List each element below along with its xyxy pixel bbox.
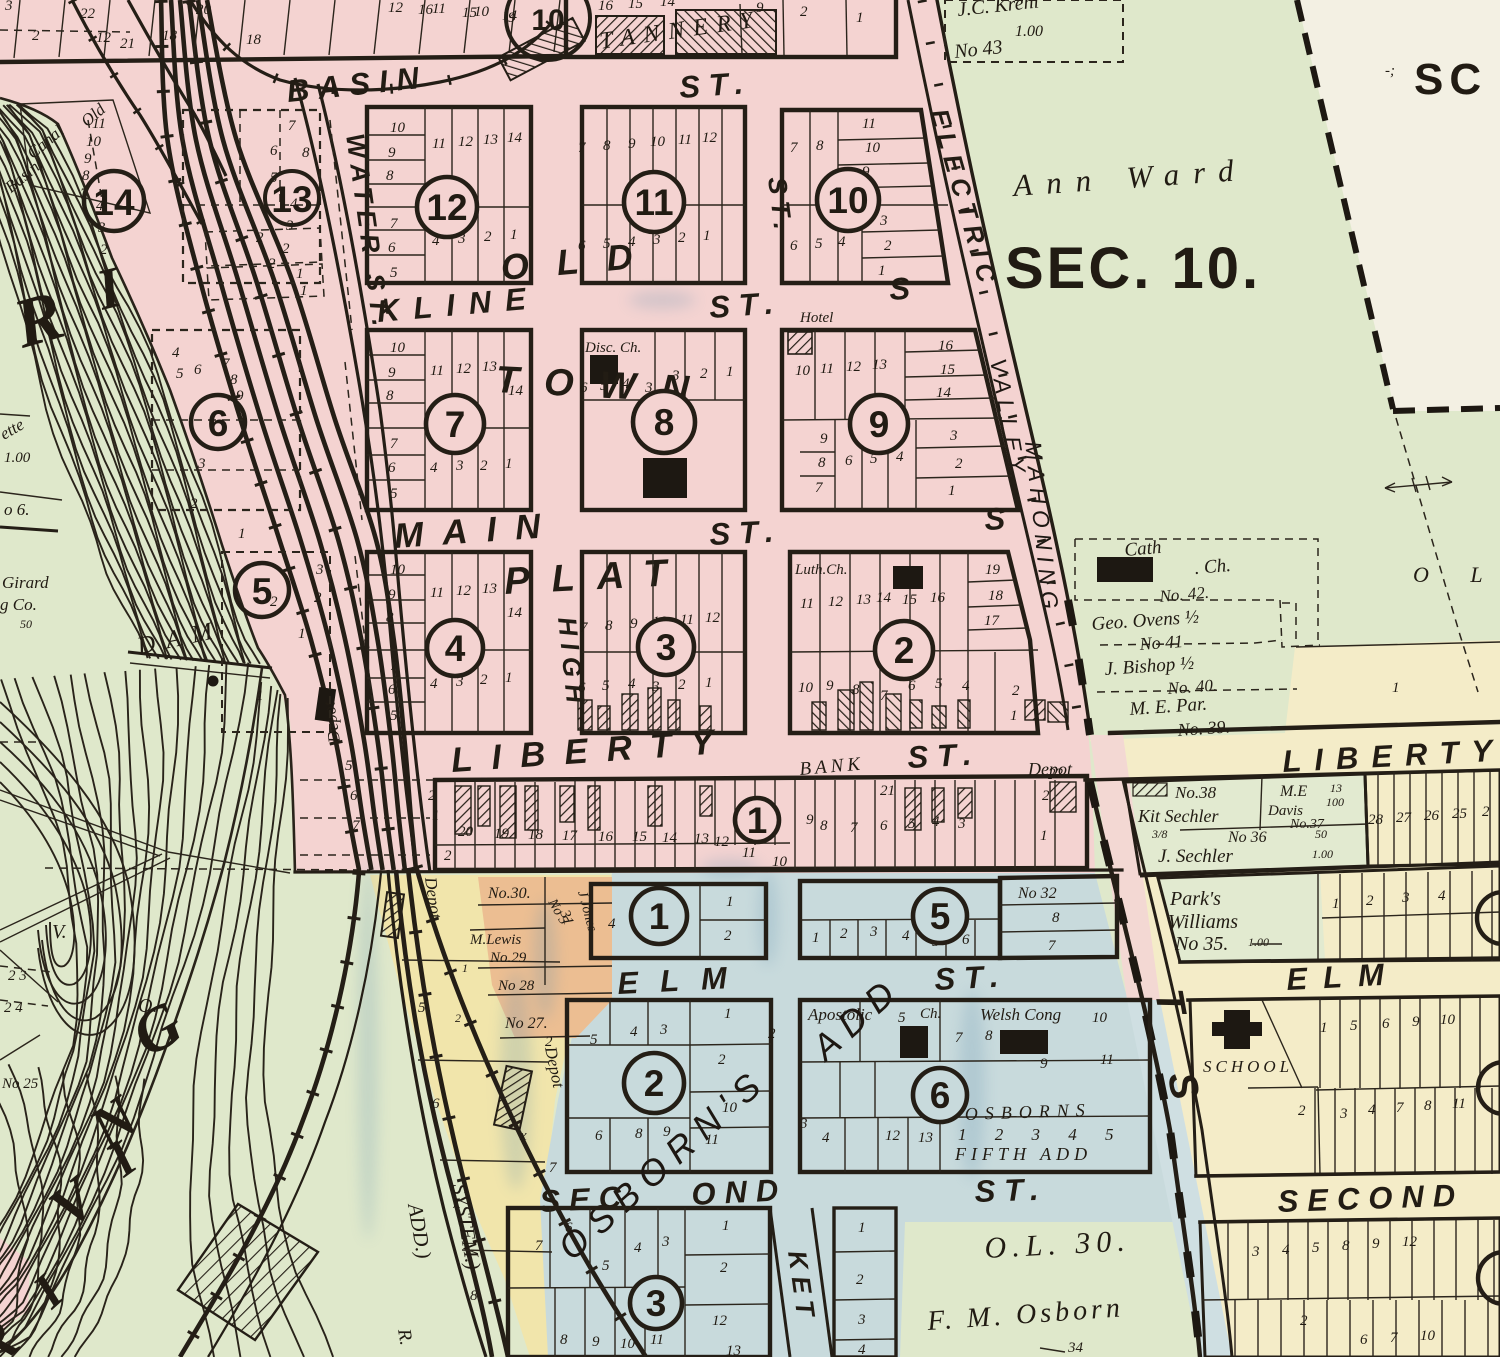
svg-text:6: 6 bbox=[208, 403, 229, 444]
svg-text:ST.: ST. bbox=[907, 736, 982, 775]
svg-text:Disc. Ch.: Disc. Ch. bbox=[584, 340, 641, 356]
svg-text:No 36: No 36 bbox=[1227, 829, 1267, 846]
svg-text:8: 8 bbox=[1052, 910, 1060, 926]
svg-text:O.: O. bbox=[138, 995, 157, 1017]
svg-text:9: 9 bbox=[592, 1334, 600, 1350]
svg-text:18: 18 bbox=[988, 588, 1004, 604]
svg-text:6: 6 bbox=[578, 680, 586, 696]
svg-text:3: 3 bbox=[857, 1312, 866, 1328]
svg-text:3: 3 bbox=[197, 456, 206, 472]
svg-text:11: 11 bbox=[432, 1, 446, 17]
svg-text:2: 2 bbox=[678, 230, 686, 246]
svg-text:4: 4 bbox=[902, 928, 910, 944]
svg-text:SEC. 10.: SEC. 10. bbox=[1005, 236, 1261, 301]
svg-text:15: 15 bbox=[902, 592, 918, 608]
svg-text:1: 1 bbox=[1392, 680, 1400, 696]
svg-text:1: 1 bbox=[726, 364, 734, 380]
svg-text:No 35.: No 35. bbox=[1174, 933, 1228, 955]
svg-text:6: 6 bbox=[790, 238, 798, 254]
svg-text:1: 1 bbox=[858, 1220, 866, 1236]
svg-text:6: 6 bbox=[432, 1096, 440, 1112]
svg-text:1: 1 bbox=[462, 961, 468, 975]
svg-text:1: 1 bbox=[724, 1006, 732, 1022]
svg-text:11: 11 bbox=[430, 363, 444, 379]
svg-text:No 28: No 28 bbox=[497, 978, 535, 994]
svg-text:Ch.: Ch. bbox=[920, 1006, 941, 1022]
svg-text:4: 4 bbox=[858, 1342, 866, 1357]
svg-text:Cath: Cath bbox=[1124, 537, 1163, 561]
svg-text:1.00: 1.00 bbox=[1248, 935, 1269, 949]
svg-text:3: 3 bbox=[659, 1022, 668, 1038]
svg-text:9: 9 bbox=[826, 678, 834, 694]
svg-text:13: 13 bbox=[482, 581, 497, 597]
svg-text:3: 3 bbox=[1251, 1244, 1260, 1260]
svg-text:3: 3 bbox=[1401, 890, 1410, 906]
svg-text:10: 10 bbox=[390, 340, 406, 356]
svg-text:17: 17 bbox=[562, 828, 579, 844]
svg-text:5: 5 bbox=[1312, 1240, 1320, 1256]
svg-text:10: 10 bbox=[795, 363, 811, 379]
svg-text:1: 1 bbox=[505, 670, 513, 686]
svg-text:13: 13 bbox=[872, 357, 887, 373]
svg-text:13: 13 bbox=[726, 1343, 741, 1357]
svg-text:FIFTH ADD: FIFTH ADD bbox=[954, 1144, 1092, 1164]
svg-text:-;: -; bbox=[1385, 63, 1395, 79]
svg-text:12: 12 bbox=[702, 130, 718, 146]
svg-text:19: 19 bbox=[985, 562, 1001, 578]
svg-text:8: 8 bbox=[230, 372, 238, 388]
svg-text:11: 11 bbox=[742, 845, 756, 861]
svg-text:1: 1 bbox=[812, 930, 820, 946]
svg-text:21: 21 bbox=[120, 36, 135, 52]
svg-text:SEC: SEC bbox=[539, 1179, 631, 1219]
svg-text:10: 10 bbox=[650, 134, 666, 150]
svg-text:12: 12 bbox=[96, 30, 112, 46]
svg-text:4: 4 bbox=[1438, 888, 1446, 904]
svg-text:5: 5 bbox=[1350, 1018, 1358, 1034]
svg-text:9: 9 bbox=[84, 151, 92, 167]
svg-text:6: 6 bbox=[388, 240, 396, 256]
svg-text:14: 14 bbox=[93, 182, 135, 223]
svg-text:7: 7 bbox=[445, 404, 466, 445]
svg-text:25: 25 bbox=[1452, 806, 1468, 822]
svg-text:14: 14 bbox=[507, 605, 523, 621]
svg-text:6: 6 bbox=[350, 788, 358, 804]
svg-text:8: 8 bbox=[1342, 1238, 1350, 1254]
svg-text:6: 6 bbox=[270, 143, 278, 159]
svg-text:4: 4 bbox=[630, 1024, 638, 1040]
svg-text:1: 1 bbox=[878, 263, 886, 279]
svg-text:11: 11 bbox=[800, 596, 814, 612]
svg-text:11: 11 bbox=[1452, 1096, 1466, 1112]
svg-text:ELM: ELM bbox=[1286, 956, 1401, 997]
svg-text:9: 9 bbox=[869, 404, 890, 445]
svg-text:2: 2 bbox=[720, 1260, 728, 1276]
svg-text:13: 13 bbox=[694, 831, 709, 847]
svg-text:Girard: Girard bbox=[2, 573, 49, 592]
svg-text:1: 1 bbox=[948, 483, 956, 499]
svg-text:2: 2 bbox=[644, 1063, 665, 1104]
svg-text:11: 11 bbox=[862, 116, 876, 132]
svg-text:9: 9 bbox=[630, 616, 638, 632]
svg-text:3: 3 bbox=[879, 213, 888, 229]
svg-text:1 2 3 4 5: 1 2 3 4 5 bbox=[958, 1125, 1126, 1144]
svg-text:1: 1 bbox=[505, 456, 513, 472]
svg-text:15: 15 bbox=[940, 362, 956, 378]
svg-text:SECOND: SECOND bbox=[1277, 1178, 1465, 1219]
svg-text:9: 9 bbox=[1040, 1056, 1048, 1072]
svg-text:8: 8 bbox=[654, 402, 675, 443]
svg-text:21: 21 bbox=[880, 783, 895, 799]
svg-text:9: 9 bbox=[806, 812, 814, 828]
svg-text:16: 16 bbox=[598, 829, 614, 845]
svg-text:16: 16 bbox=[598, 0, 614, 14]
svg-text:1.00: 1.00 bbox=[1312, 847, 1333, 861]
svg-text:10: 10 bbox=[531, 4, 564, 37]
svg-text:2: 2 bbox=[1012, 683, 1020, 699]
svg-text:4: 4 bbox=[608, 916, 616, 932]
svg-text:2: 2 bbox=[1042, 788, 1050, 804]
svg-text:No 41: No 41 bbox=[1138, 631, 1184, 654]
svg-text:4: 4 bbox=[896, 449, 904, 465]
svg-text:26: 26 bbox=[1424, 808, 1440, 824]
svg-text:5: 5 bbox=[930, 896, 951, 937]
svg-text:5: 5 bbox=[176, 366, 184, 382]
svg-text:2: 2 bbox=[724, 928, 732, 944]
svg-text:6: 6 bbox=[194, 362, 202, 378]
svg-text:10: 10 bbox=[390, 120, 406, 136]
svg-text:No 27.: No 27. bbox=[504, 1015, 548, 1032]
svg-text:Hotel: Hotel bbox=[799, 310, 833, 326]
svg-text:3: 3 bbox=[661, 1234, 670, 1250]
svg-text:1: 1 bbox=[1332, 896, 1340, 912]
svg-text:13: 13 bbox=[271, 179, 312, 220]
svg-text:11: 11 bbox=[634, 182, 673, 223]
svg-text:4: 4 bbox=[1368, 1102, 1376, 1118]
svg-text:4: 4 bbox=[822, 1130, 830, 1146]
svg-text:12: 12 bbox=[885, 1128, 901, 1144]
svg-text:4: 4 bbox=[962, 678, 970, 694]
svg-text:ELM: ELM bbox=[617, 959, 750, 1001]
svg-text:10: 10 bbox=[474, 4, 490, 20]
svg-text:9: 9 bbox=[388, 145, 396, 161]
svg-text:12: 12 bbox=[828, 594, 844, 610]
svg-text:5: 5 bbox=[898, 1010, 906, 1026]
svg-text:5: 5 bbox=[345, 758, 353, 774]
svg-text:2: 2 bbox=[894, 630, 915, 671]
svg-text:S: S bbox=[1159, 1069, 1209, 1112]
svg-text:3: 3 bbox=[455, 458, 464, 474]
svg-text:2: 2 bbox=[1298, 1103, 1306, 1119]
svg-text:6: 6 bbox=[1382, 1016, 1390, 1032]
svg-text:12: 12 bbox=[714, 834, 730, 850]
svg-text:2: 2 bbox=[955, 456, 963, 472]
svg-text:9: 9 bbox=[388, 365, 396, 381]
svg-text:22: 22 bbox=[80, 6, 96, 22]
svg-text:100: 100 bbox=[1326, 795, 1344, 809]
svg-text:9: 9 bbox=[628, 136, 636, 152]
svg-text:1: 1 bbox=[747, 800, 768, 841]
svg-text:9: 9 bbox=[820, 431, 828, 447]
svg-text:12: 12 bbox=[1402, 1234, 1418, 1250]
svg-text:8: 8 bbox=[603, 138, 611, 154]
svg-text:5: 5 bbox=[418, 1000, 426, 1016]
svg-text:14: 14 bbox=[662, 830, 678, 846]
svg-text:16: 16 bbox=[930, 590, 946, 606]
svg-text:1: 1 bbox=[649, 896, 670, 937]
svg-text:2: 2 bbox=[800, 4, 808, 20]
svg-text:10: 10 bbox=[86, 134, 102, 150]
svg-text:12: 12 bbox=[712, 1313, 728, 1329]
svg-text:8: 8 bbox=[302, 145, 310, 161]
svg-text:13: 13 bbox=[482, 359, 497, 375]
svg-text:2: 2 bbox=[1366, 893, 1374, 909]
svg-text:9: 9 bbox=[508, 10, 516, 26]
svg-text:8: 8 bbox=[985, 1028, 993, 1044]
svg-text:No.30.: No.30. bbox=[487, 885, 531, 902]
svg-text:4: 4 bbox=[172, 345, 180, 361]
svg-text:13: 13 bbox=[856, 592, 871, 608]
svg-text:1.00: 1.00 bbox=[1015, 23, 1043, 40]
svg-text:. Ch.: . Ch. bbox=[1194, 555, 1232, 579]
svg-text:12: 12 bbox=[705, 610, 721, 626]
svg-text:8: 8 bbox=[560, 1332, 568, 1348]
svg-text:1: 1 bbox=[238, 526, 246, 542]
svg-text:18: 18 bbox=[162, 28, 178, 44]
svg-text:17: 17 bbox=[984, 613, 1001, 629]
svg-text:Kit Sechler: Kit Sechler bbox=[1137, 806, 1219, 826]
svg-text:13: 13 bbox=[483, 132, 498, 148]
svg-text:Park's: Park's bbox=[1169, 888, 1221, 910]
svg-text:Williams: Williams bbox=[1168, 911, 1238, 933]
svg-text:Luth.Ch.: Luth.Ch. bbox=[794, 562, 848, 578]
svg-text:9: 9 bbox=[1372, 1236, 1380, 1252]
svg-text:10: 10 bbox=[1420, 1328, 1436, 1344]
svg-text:2: 2 bbox=[840, 926, 848, 942]
svg-text:2: 2 bbox=[268, 256, 276, 272]
svg-text:2: 2 bbox=[314, 590, 322, 606]
svg-text:No.29: No.29 bbox=[489, 950, 527, 966]
svg-text:10: 10 bbox=[390, 562, 406, 578]
svg-text:13: 13 bbox=[1330, 781, 1342, 795]
svg-text:3/8: 3/8 bbox=[1151, 827, 1167, 841]
svg-text:2 3: 2 3 bbox=[8, 968, 27, 984]
svg-text:2: 2 bbox=[856, 1272, 864, 1288]
svg-text:4: 4 bbox=[1282, 1242, 1290, 1258]
svg-text:8: 8 bbox=[470, 1288, 478, 1304]
svg-text:2: 2 bbox=[455, 1011, 461, 1025]
svg-text:8: 8 bbox=[386, 168, 394, 184]
svg-text:No.38: No.38 bbox=[1174, 783, 1217, 802]
svg-text:12: 12 bbox=[456, 583, 472, 599]
svg-text:13: 13 bbox=[918, 1130, 933, 1146]
svg-text:11: 11 bbox=[650, 1332, 664, 1348]
svg-text:V.: V. bbox=[52, 921, 67, 943]
svg-text:20: 20 bbox=[196, 2, 212, 18]
svg-text:2: 2 bbox=[256, 230, 264, 246]
svg-text:6: 6 bbox=[930, 1075, 951, 1116]
svg-text:8: 8 bbox=[605, 618, 613, 634]
svg-text:11: 11 bbox=[430, 585, 444, 601]
svg-text:14: 14 bbox=[507, 130, 523, 146]
svg-text:2: 2 bbox=[428, 788, 436, 804]
svg-text:1: 1 bbox=[1320, 1020, 1328, 1036]
svg-text:12: 12 bbox=[846, 359, 862, 375]
svg-text:5: 5 bbox=[390, 708, 398, 724]
svg-text:4: 4 bbox=[634, 1240, 642, 1256]
svg-text:18: 18 bbox=[246, 32, 262, 48]
svg-text:11: 11 bbox=[432, 136, 446, 152]
svg-text:10: 10 bbox=[620, 1336, 636, 1352]
svg-text:8: 8 bbox=[816, 138, 824, 154]
svg-text:2: 2 bbox=[444, 848, 452, 864]
svg-text:2: 2 bbox=[718, 1052, 726, 1068]
svg-text:14: 14 bbox=[660, 0, 676, 10]
svg-text:1.00: 1.00 bbox=[4, 450, 31, 466]
svg-text:12: 12 bbox=[426, 187, 467, 228]
svg-text:2: 2 bbox=[1300, 1313, 1308, 1329]
svg-text:5: 5 bbox=[590, 1032, 598, 1048]
svg-text:5: 5 bbox=[252, 571, 273, 612]
svg-text:6: 6 bbox=[1360, 1332, 1368, 1348]
svg-text:3: 3 bbox=[315, 562, 324, 578]
svg-text:6: 6 bbox=[388, 682, 396, 698]
svg-text:1: 1 bbox=[722, 1218, 730, 1234]
svg-text:2: 2 bbox=[100, 242, 108, 258]
svg-text:10: 10 bbox=[798, 680, 814, 696]
svg-text:6: 6 bbox=[388, 460, 396, 476]
svg-text:No 25: No 25 bbox=[1, 1076, 39, 1092]
svg-text:M.Lewis: M.Lewis bbox=[469, 932, 521, 948]
svg-text:2: 2 bbox=[678, 677, 686, 693]
svg-text:1: 1 bbox=[298, 626, 306, 642]
svg-text:1: 1 bbox=[296, 266, 304, 282]
svg-text:Welsh Cong: Welsh Cong bbox=[980, 1005, 1061, 1024]
svg-text:4: 4 bbox=[430, 676, 438, 692]
svg-text:2: 2 bbox=[480, 458, 488, 474]
svg-text:10: 10 bbox=[865, 140, 881, 156]
svg-text:28: 28 bbox=[1368, 812, 1384, 828]
svg-text:12: 12 bbox=[456, 361, 472, 377]
svg-text:4: 4 bbox=[445, 628, 466, 669]
svg-text:5: 5 bbox=[602, 1258, 610, 1274]
svg-text:5: 5 bbox=[602, 678, 610, 694]
svg-text:22: 22 bbox=[1048, 766, 1064, 782]
svg-text:2: 2 bbox=[884, 238, 892, 254]
svg-text:M.E: M.E bbox=[1279, 783, 1307, 800]
svg-text:15: 15 bbox=[632, 829, 648, 845]
svg-text:8: 8 bbox=[1424, 1098, 1432, 1114]
svg-text:14: 14 bbox=[876, 590, 892, 606]
svg-text:9: 9 bbox=[756, 0, 764, 16]
svg-text:8: 8 bbox=[818, 455, 826, 471]
svg-text:6: 6 bbox=[962, 932, 970, 948]
svg-text:10: 10 bbox=[1092, 1010, 1108, 1026]
svg-text:SCHOOL: SCHOOL bbox=[1203, 1057, 1293, 1076]
svg-text:1: 1 bbox=[1040, 828, 1048, 844]
svg-text:4: 4 bbox=[628, 676, 636, 692]
svg-text:1: 1 bbox=[726, 894, 734, 910]
svg-text:ST.: ST. bbox=[974, 1171, 1048, 1209]
svg-text:ST.: ST. bbox=[934, 958, 1009, 997]
svg-text:4: 4 bbox=[838, 234, 846, 250]
svg-text:3: 3 bbox=[869, 924, 878, 940]
svg-text:50: 50 bbox=[1315, 827, 1327, 841]
svg-text:1: 1 bbox=[432, 808, 440, 824]
svg-text:9: 9 bbox=[1412, 1014, 1420, 1030]
svg-text:S: S bbox=[984, 500, 1015, 537]
svg-text:2: 2 bbox=[282, 241, 290, 257]
svg-text:6: 6 bbox=[565, 1220, 573, 1236]
svg-text:J. Sechler: J. Sechler bbox=[1158, 846, 1234, 867]
svg-text:2: 2 bbox=[1482, 804, 1490, 820]
svg-text:16: 16 bbox=[938, 338, 954, 354]
svg-text:ST.: ST. bbox=[709, 513, 784, 552]
svg-text:10: 10 bbox=[827, 180, 868, 221]
svg-text:2: 2 bbox=[484, 229, 492, 245]
svg-text:S: S bbox=[888, 270, 920, 307]
svg-text:3: 3 bbox=[949, 428, 958, 444]
svg-text:14: 14 bbox=[936, 385, 952, 401]
svg-text:6: 6 bbox=[595, 1128, 603, 1144]
svg-text:10: 10 bbox=[1440, 1012, 1456, 1028]
svg-text:9: 9 bbox=[388, 587, 396, 603]
svg-text:1: 1 bbox=[705, 675, 713, 691]
svg-text:10: 10 bbox=[772, 854, 788, 870]
svg-text:1: 1 bbox=[703, 228, 711, 244]
svg-text:3: 3 bbox=[656, 627, 677, 668]
svg-text:1: 1 bbox=[256, 688, 264, 704]
svg-text:1: 1 bbox=[510, 227, 518, 243]
svg-text:ST.: ST. bbox=[708, 285, 783, 325]
svg-text:5: 5 bbox=[935, 676, 943, 692]
svg-text:12: 12 bbox=[388, 0, 404, 16]
svg-text:No 32: No 32 bbox=[1017, 885, 1057, 902]
svg-text:4: 4 bbox=[430, 460, 438, 476]
svg-text:o 6.: o 6. bbox=[4, 500, 30, 519]
svg-text:3: 3 bbox=[646, 1283, 667, 1324]
svg-text:2: 2 bbox=[480, 672, 488, 688]
svg-text:11: 11 bbox=[678, 132, 692, 148]
svg-text:g Co.: g Co. bbox=[0, 595, 37, 614]
svg-text:1: 1 bbox=[300, 283, 308, 299]
svg-text:R.: R. bbox=[393, 1326, 417, 1347]
svg-text:1: 1 bbox=[1010, 708, 1018, 724]
svg-text:2: 2 bbox=[190, 496, 198, 512]
svg-text:50: 50 bbox=[20, 617, 32, 631]
svg-text:8: 8 bbox=[635, 1126, 643, 1142]
svg-text:11: 11 bbox=[92, 116, 106, 132]
svg-text:8: 8 bbox=[386, 388, 394, 404]
svg-text:12: 12 bbox=[458, 134, 474, 150]
svg-text:SC: SC bbox=[1414, 55, 1487, 104]
svg-text:6: 6 bbox=[880, 818, 888, 834]
svg-text:x: x bbox=[519, 1128, 527, 1144]
svg-text:8: 8 bbox=[386, 610, 394, 626]
svg-text:6: 6 bbox=[845, 453, 853, 469]
svg-text:8: 8 bbox=[820, 818, 828, 834]
svg-text:3: 3 bbox=[1339, 1106, 1348, 1122]
svg-text:15: 15 bbox=[628, 0, 644, 12]
svg-text:27: 27 bbox=[1396, 810, 1413, 826]
svg-text:3: 3 bbox=[4, 0, 13, 14]
svg-text:11: 11 bbox=[820, 361, 834, 377]
svg-text:O L.: O L. bbox=[1413, 562, 1500, 587]
svg-text:2: 2 bbox=[545, 1034, 553, 1050]
svg-text:5: 5 bbox=[390, 265, 398, 281]
svg-text:2: 2 bbox=[768, 1026, 776, 1042]
svg-text:34: 34 bbox=[1067, 1340, 1084, 1356]
